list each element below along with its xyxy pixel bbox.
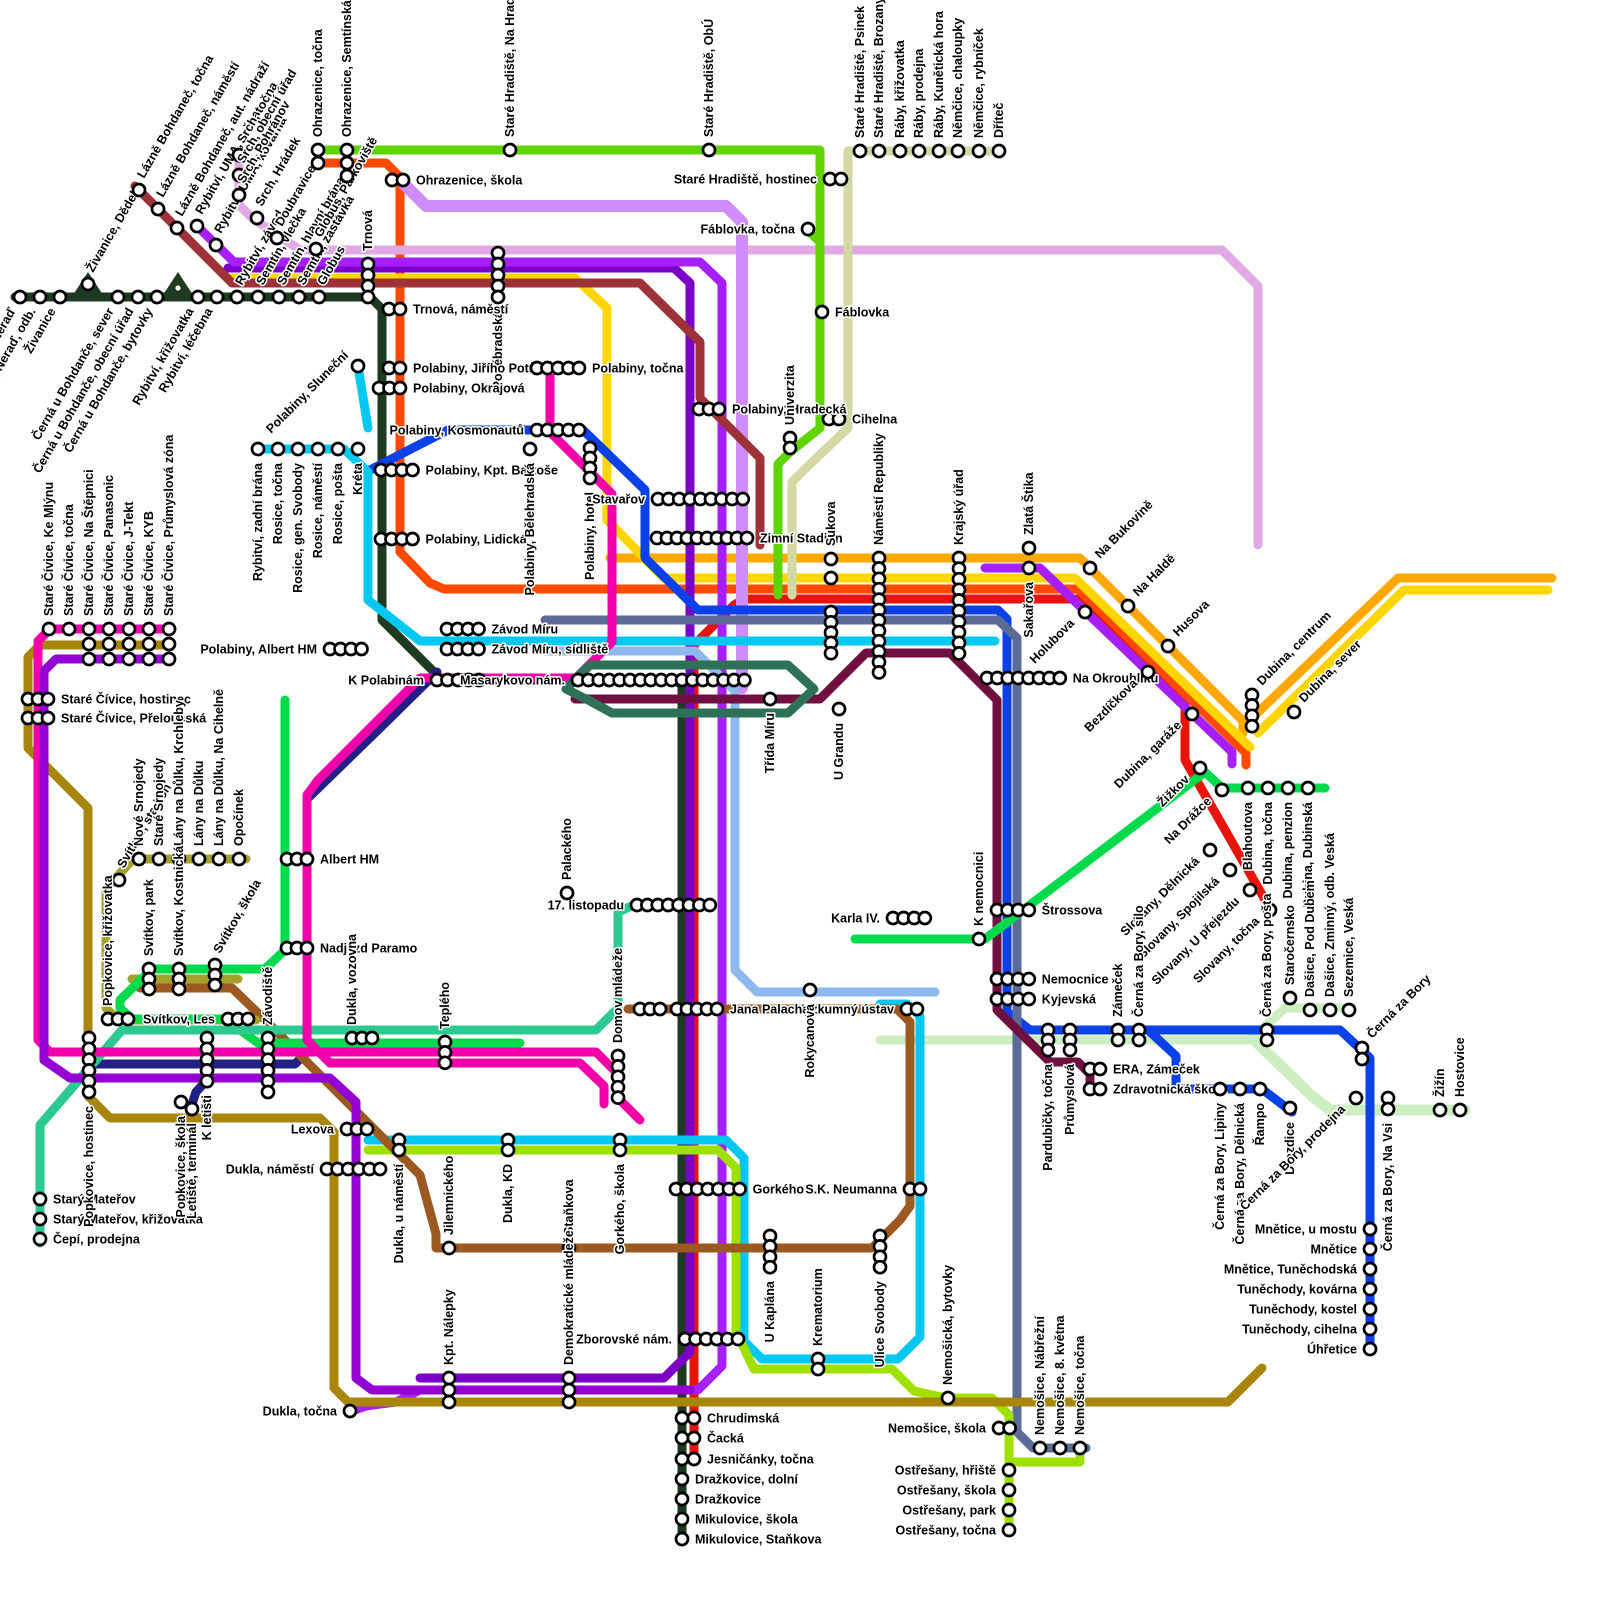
station-Kréta[interactable]: [352, 443, 364, 455]
station-label: Žižín: [1432, 1069, 1447, 1097]
station-Ráby, křižovatka[interactable]: [894, 145, 906, 157]
station-label: Kréta: [351, 462, 365, 495]
station-label: Svítkov, Kostnická: [172, 846, 186, 956]
station-label: Staré Hradiště, Na Hradci: [503, 0, 517, 137]
station-Černá u Bohdanče, bytovky[interactable]: [151, 291, 163, 303]
station-Trnová[interactable]: [362, 291, 374, 303]
station-label: Lány na Důlku, Krchleby: [172, 700, 186, 846]
station-Sakařova[interactable]: [1023, 562, 1035, 574]
station-Ráby, Kunětická hora[interactable]: [933, 145, 945, 157]
station-Polabiny, Bělehradská[interactable]: [524, 443, 536, 455]
station-label: Dražkovice, dolní: [695, 1473, 798, 1487]
station-Rybitví, UMA, točna[interactable]: [191, 220, 203, 232]
station-label: Náměstí Republiky: [872, 433, 886, 545]
station-Živanice, Dědek[interactable]: [82, 278, 94, 290]
station-Holubova[interactable]: [1079, 606, 1091, 618]
station-label: Na Bukovině: [1092, 498, 1155, 561]
station-Čacká[interactable]: [676, 1432, 688, 1444]
station-Polabiny, točna[interactable]: [573, 362, 585, 374]
station-label: Demokratické mládeže: [562, 1230, 576, 1365]
station-Staré Srnojedy[interactable]: [153, 853, 165, 865]
station-label: Ráby, Kunětická hora: [932, 10, 946, 138]
station-Globus, Parkoviště[interactable]: [310, 243, 322, 255]
station-label: Teplého: [438, 982, 452, 1029]
station-Ohrazenice, Semtínská[interactable]: [341, 157, 353, 169]
station-Černá u Bohdanče, obecní úřad[interactable]: [132, 291, 144, 303]
station-label: Staré Hradiště, hostinec: [674, 173, 817, 187]
station-label: U Grandu: [832, 723, 846, 780]
station-label: Polabiny, Bělehradská: [523, 463, 537, 596]
station-Tuněchody, kovárna[interactable]: [1364, 1283, 1376, 1295]
station-Jesničánky, točna[interactable]: [688, 1453, 700, 1465]
station-label: Mnětice, Tuněchodská: [1224, 1263, 1357, 1277]
station-Dubina, Dubinská[interactable]: [1302, 782, 1314, 794]
station-Staré Čívice, Na Štěpnici[interactable]: [83, 653, 95, 665]
station-Albert HM[interactable]: [301, 853, 313, 865]
station-label: Cihelna: [852, 413, 898, 427]
station-Drozdice[interactable]: [1284, 1102, 1296, 1114]
station-Svítkov, škola[interactable]: [209, 979, 221, 991]
station-Žižkov[interactable]: [1194, 762, 1206, 774]
station-Staré Čívice, Panasonic[interactable]: [103, 623, 115, 635]
station-Staré Čívice, Přeloučská[interactable]: [42, 712, 54, 724]
station-Polabiny, Kpt. Bartoše[interactable]: [407, 464, 419, 476]
station-Zimní Stadion[interactable]: [741, 532, 753, 544]
station-U Kaplána[interactable]: [764, 1261, 776, 1273]
station-K nemocnici[interactable]: [973, 933, 985, 945]
station-17. listopadu[interactable]: [704, 899, 716, 911]
station-Lány na Důlku[interactable]: [193, 853, 205, 865]
station-Zlatá Štika[interactable]: [1023, 542, 1035, 554]
station-Starý Mateřov[interactable]: [34, 1193, 46, 1205]
station-Ohrazenice, Semtínská[interactable]: [341, 144, 353, 156]
station-Třída Míru[interactable]: [764, 693, 776, 705]
station-label: Lány na Důlku: [192, 761, 206, 846]
station-Sukova[interactable]: [825, 572, 837, 584]
station-Dašice, Zminný, odb. Veská[interactable]: [1324, 1004, 1336, 1016]
station-label: Průmyslová: [1063, 1064, 1077, 1135]
station-Pardubičky, točna[interactable]: [1042, 1044, 1054, 1056]
station-Polabiny, Okrajová[interactable]: [394, 382, 406, 394]
station-label: Dašice, Zminný, odb. Veská: [1323, 833, 1337, 997]
station-label: Palackého: [560, 818, 574, 880]
station-Svítkov, Les[interactable]: [242, 1013, 254, 1025]
station-Staré Hradiště, Brozany[interactable]: [873, 145, 885, 157]
station-Lány na Důlku, Na Cihelně[interactable]: [213, 853, 225, 865]
station-Ohrazenice, točna[interactable]: [312, 144, 324, 156]
station-Žižín[interactable]: [1434, 1104, 1446, 1116]
station-Dašice, Pod Dubem[interactable]: [1304, 1004, 1316, 1016]
station-Ostřešany, park[interactable]: [1003, 1504, 1015, 1516]
station-Staré Čívice, Průmyslová zóna[interactable]: [163, 623, 175, 635]
station-Nemošice, Nábřežní[interactable]: [1034, 1442, 1046, 1454]
station-Nadjezd Paramo[interactable]: [301, 942, 313, 954]
station-Polabiny, Lidická[interactable]: [407, 533, 419, 545]
station-Zámeček[interactable]: [1112, 1034, 1124, 1046]
station-Dukla, točna[interactable]: [344, 1405, 356, 1417]
station-Slovany, U přejezdu[interactable]: [1244, 884, 1256, 896]
station-Mnětice[interactable]: [1364, 1243, 1376, 1255]
station-Polabiny, Sluneční[interactable]: [352, 360, 364, 372]
station-label: Staré Čívice, Ke Mlýnu: [41, 482, 56, 616]
station-Staré Čívice, Ke Mlýnu[interactable]: [43, 623, 55, 635]
station-Jana Palacha[interactable]: [711, 1003, 723, 1015]
station-Dukla, KD[interactable]: [502, 1144, 514, 1156]
station-Dukla, vozovna[interactable]: [366, 1032, 378, 1044]
station-label: Černá za Bory, Dělnická: [1232, 1103, 1247, 1245]
station-Černá za Bory, Na Vsi[interactable]: [1382, 1103, 1394, 1115]
station-Štrossova[interactable]: [1023, 904, 1035, 916]
station-Kpt. Nálepky[interactable]: [443, 1372, 455, 1384]
station-Nemocnice[interactable]: [1023, 973, 1035, 985]
station-Mnětice, Tuněchodská[interactable]: [1364, 1263, 1376, 1275]
station-Demokratické mládeže[interactable]: [563, 1384, 575, 1396]
station-Ostřešany, hřiště[interactable]: [1003, 1464, 1015, 1476]
station-label: Polabiny, Lidická: [426, 533, 527, 547]
station-Chrudimská[interactable]: [688, 1412, 700, 1424]
station-Staré Hradiště, hostinec[interactable]: [835, 173, 847, 185]
station-label: Dubina, penzion: [1281, 802, 1295, 899]
station-Trnová, náměstí[interactable]: [394, 303, 406, 315]
station-label: Závodiště: [261, 967, 275, 1025]
station-label: Sezemice, Veská: [1342, 898, 1356, 997]
station-Polabiny, Albert HM[interactable]: [356, 643, 368, 655]
station-label: Dukla, vozovna: [345, 933, 359, 1025]
station-Staré Čívice, Průmyslová zóna[interactable]: [163, 638, 175, 650]
station-label: Na Haldě: [1130, 551, 1178, 599]
station-Srch, Pohránov[interactable]: [233, 189, 245, 201]
station-Semtín, hlavní brána[interactable]: [273, 291, 285, 303]
station-Popkovice, škola[interactable]: [175, 1096, 187, 1108]
station-Mikulovice, Staňkova[interactable]: [676, 1533, 688, 1545]
station-Letiště, terminál[interactable]: [186, 1103, 198, 1115]
station-Staré Čívice, J-Tekt[interactable]: [123, 638, 135, 650]
station-Stavařov[interactable]: [737, 493, 749, 505]
station-Slovany, Dělnická[interactable]: [1204, 844, 1216, 856]
station-Staré Čívice, Panasonic[interactable]: [103, 638, 115, 650]
station-Čacká[interactable]: [688, 1432, 700, 1444]
station-Rybitví, UMA, kovárna[interactable]: [210, 239, 222, 251]
station-label: Chrudimská: [707, 1412, 779, 1426]
station-label: Staré Čívice, J-Tekt: [121, 501, 136, 616]
station-label: Kyjevská: [1042, 993, 1096, 1007]
station-Černá u Bohdanče, sever[interactable]: [112, 291, 124, 303]
station-Polabiny, Hradecká[interactable]: [713, 403, 725, 415]
station-label: Mikulovice, Staňkova: [695, 1533, 822, 1547]
station-label: Němčice, chaloupky: [951, 18, 965, 138]
station-label: Řampo: [1252, 1103, 1267, 1146]
station-Rosice, pošta[interactable]: [332, 443, 344, 455]
station-Černá za Bory, silo[interactable]: [1133, 1034, 1145, 1046]
station-label: 17. listopadu: [548, 899, 624, 913]
station-Černá za Bory, prodejna[interactable]: [1350, 1092, 1362, 1104]
station-label: S.K. Neumanna: [805, 1183, 898, 1197]
station-Staré Čívice, KYB[interactable]: [143, 623, 155, 635]
station-Němčice, rybníček[interactable]: [973, 145, 985, 157]
station-Dražkovice, dolní[interactable]: [676, 1473, 688, 1485]
station-Palackého[interactable]: [561, 887, 573, 899]
station-Nemošice, točna[interactable]: [1074, 1442, 1086, 1454]
station-Černá za Bory, Dělnická[interactable]: [1234, 1083, 1246, 1095]
station-Ohrazenice, Semtínská[interactable]: [341, 170, 353, 182]
station-Demokratické mládeže[interactable]: [563, 1396, 575, 1408]
station-Nemošice, 8. května[interactable]: [1054, 1442, 1066, 1454]
station-Náměstí Republiky[interactable]: [873, 666, 885, 678]
transit-map-canvas: Živanice, NeraďŽivanice, Neraď, odb.Živa…: [0, 0, 1600, 1600]
station-label: Němčice, rybníček: [972, 28, 986, 138]
station-Ostřešany, škola[interactable]: [1003, 1484, 1015, 1496]
station-Úhřetice[interactable]: [1364, 1343, 1376, 1355]
station-Univerzita[interactable]: [784, 442, 796, 454]
station-label: Staré Čívice, točna: [61, 503, 76, 616]
station-Dubina, sever[interactable]: [1288, 706, 1300, 718]
station-label: Zámeček: [1111, 963, 1125, 1017]
station-Srch, Hrádek[interactable]: [251, 212, 263, 224]
station-Ulice Svobody[interactable]: [874, 1261, 886, 1273]
station-label: Dubina, točna: [1261, 801, 1275, 885]
station-Chrudimská[interactable]: [676, 1412, 688, 1424]
station-Teplého[interactable]: [439, 1057, 451, 1069]
station-Poděbradská[interactable]: [492, 291, 504, 303]
station-Gorkého, škola[interactable]: [614, 1144, 626, 1156]
station-label: Rokycanova: [803, 1003, 817, 1078]
station-Dukla, náměstí[interactable]: [374, 1163, 386, 1175]
station-Staré Hradiště, ObÚ[interactable]: [703, 144, 715, 156]
station-label: Polabiny, točna: [592, 362, 684, 376]
station-Staročernsko[interactable]: [1284, 992, 1296, 1004]
station-Popkovice, hostinec[interactable]: [83, 1086, 95, 1098]
station-Staré Čívice, J-Tekt[interactable]: [123, 623, 135, 635]
station-Polabiny, hotel[interactable]: [584, 472, 596, 484]
line-slunecni-spur: [358, 366, 368, 428]
station-Staré Čívice, hostinec[interactable]: [42, 693, 54, 705]
station-label: Černá za Bory: [1364, 971, 1434, 1041]
station-Lázně Bohdaneč, točna[interactable]: [133, 184, 145, 196]
station-label: Čepí, prodejna: [53, 1232, 141, 1247]
station-Zborovské nám.[interactable]: [732, 1333, 744, 1345]
station-label: Černá za Bory, Na Vsi: [1380, 1123, 1395, 1251]
station-Krematorium[interactable]: [812, 1363, 824, 1375]
station-Jilemnického[interactable]: [443, 1242, 455, 1254]
station-Mnětice, u mostu[interactable]: [1364, 1223, 1376, 1235]
station-Na Haldě[interactable]: [1122, 600, 1134, 612]
station-Svítkov, Kostnická[interactable]: [173, 983, 185, 995]
station-Staré Čívice, Na Štěpnici[interactable]: [83, 638, 95, 650]
station-Staré Hradiště, Psinek[interactable]: [854, 145, 866, 157]
station-Dubina, penzion[interactable]: [1282, 782, 1294, 794]
station-Hostovice[interactable]: [1454, 1104, 1466, 1116]
station-Řampo[interactable]: [1254, 1083, 1266, 1095]
station-Starý Mateřov, křižovatka[interactable]: [34, 1213, 46, 1225]
station-label: Staré Čívice, Panasonic: [101, 475, 116, 616]
station-Dubina, točna[interactable]: [1262, 782, 1274, 794]
station-label: Nemošice, škola: [888, 1422, 987, 1436]
station-label: Trnová, náměstí: [413, 303, 509, 317]
station-label: K Polabinám: [348, 674, 424, 688]
station-Staré Hradiště, Na Hradci[interactable]: [504, 144, 516, 156]
station-Rosice, točna[interactable]: [272, 443, 284, 455]
station-label: Jana Palacha: [730, 1003, 810, 1017]
station-Semtín, zastávka[interactable]: [293, 291, 305, 303]
station-label: K letišti: [200, 1095, 214, 1140]
station-Rosice, náměstí[interactable]: [312, 443, 324, 455]
station-Bezdíčkova[interactable]: [1142, 666, 1154, 678]
station-Kpt. Nálepky[interactable]: [443, 1396, 455, 1408]
station-Dubina, centrum[interactable]: [1246, 720, 1258, 732]
station-Závodiště[interactable]: [262, 1086, 274, 1098]
station-Jesničánky, točna[interactable]: [676, 1453, 688, 1465]
station-label: Lány na Důlku, Na Cihelně: [212, 689, 226, 846]
station-Mikulovice, škola[interactable]: [676, 1513, 688, 1525]
station-label: Ulice Svobody: [873, 1281, 887, 1367]
station-Čepí, prodejna[interactable]: [34, 1233, 46, 1245]
station-label: Rosice, gen. Svobody: [291, 463, 305, 593]
station-Staré Čívice, točna[interactable]: [63, 623, 75, 635]
station[interactable]: [654, 1003, 666, 1015]
station-Kpt. Nálepky[interactable]: [443, 1384, 455, 1396]
station-label: U Kaplána: [763, 1280, 777, 1342]
station-Závod Míru[interactable]: [473, 623, 485, 635]
station-Svítkov, park[interactable]: [143, 983, 155, 995]
station-Slovany, Spojilská[interactable]: [1224, 864, 1236, 876]
station-Tuněchody, kostel[interactable]: [1364, 1303, 1376, 1315]
station-K letišti[interactable]: [201, 1075, 213, 1087]
station-Ohrazenice, točna[interactable]: [312, 157, 324, 169]
station-Živanice[interactable]: [54, 291, 66, 303]
station-label: Rosice, točna: [271, 462, 285, 544]
station-Blahoutova[interactable]: [1242, 782, 1254, 794]
station-Na Bukovině[interactable]: [1084, 562, 1096, 574]
station-label: Mnětice, u mostu: [1255, 1223, 1357, 1237]
station-label: Ohrazenice, škola: [416, 174, 523, 188]
station-Staré Čívice, Panasonic[interactable]: [103, 653, 115, 665]
station-Staré Čívice, Na Štěpnici[interactable]: [83, 623, 95, 635]
station-Sukova[interactable]: [825, 553, 837, 565]
station-label: Ostřešany, škola: [897, 1484, 997, 1498]
station-Semtín, vlečka[interactable]: [252, 291, 264, 303]
station-Domov mládeže[interactable]: [612, 1092, 624, 1104]
station-Krajský úřad[interactable]: [953, 647, 965, 659]
station-Opočínek[interactable]: [233, 853, 245, 865]
station-label: Gorkého, škola: [613, 1163, 627, 1254]
station-label: Krematorium: [811, 1268, 825, 1346]
station-label: Lexova: [291, 1123, 335, 1137]
station-label: Letiště, terminál: [185, 1123, 199, 1219]
station-Lázně Bohdaneč, aut. nádraží[interactable]: [171, 222, 183, 234]
station-S.K. Neumanna[interactable]: [914, 1183, 926, 1195]
station-Průmyslová[interactable]: [1064, 1044, 1076, 1056]
station-Lexova[interactable]: [361, 1123, 373, 1135]
station-Živanice, Neraď, odb.[interactable]: [34, 291, 46, 303]
station-Rybitví, léčebna[interactable]: [211, 291, 223, 303]
station-Sezemice, Veská[interactable]: [1343, 1004, 1355, 1016]
station-label: Ostřešany, hřiště: [895, 1464, 996, 1478]
station-Popkovice, křižovatka[interactable]: [122, 1013, 134, 1025]
station-Staré Čívice, KYB[interactable]: [143, 653, 155, 665]
station-label: Dražkovice: [695, 1493, 761, 1507]
station-Na Drážce[interactable]: [1216, 784, 1228, 796]
station-Dukla, u náměstí[interactable]: [393, 1144, 405, 1156]
station-Dubina, garáže[interactable]: [1186, 708, 1198, 720]
station-label: Rybitví, zadní brána: [251, 462, 265, 581]
station-Výzkumný ústav[interactable]: [911, 1003, 923, 1015]
station-Staré Čívice, Průmyslová zóna[interactable]: [163, 653, 175, 665]
station-Masarykovo nám.[interactable]: [738, 674, 750, 686]
station-Fáblovka, točna[interactable]: [802, 223, 814, 235]
station-Rosice, gen. Svobody[interactable]: [292, 443, 304, 455]
station-Černá za Bory[interactable]: [1356, 1053, 1368, 1065]
station-label: Polabiny, Kosmonautů: [390, 424, 525, 438]
station-Tuněchody, cihelna[interactable]: [1364, 1323, 1376, 1335]
station-Nemošice, škola[interactable]: [1004, 1422, 1016, 1434]
station-Staré Čívice, J-Tekt[interactable]: [123, 653, 135, 665]
station-Na Okrouhlíku[interactable]: [1054, 672, 1066, 684]
station-Husova[interactable]: [1162, 640, 1174, 652]
station-Rokycanova[interactable]: [804, 984, 816, 996]
station[interactable]: [825, 647, 837, 659]
station-Rybitví, zadní brána[interactable]: [252, 443, 264, 455]
station-Staré Čívice, KYB[interactable]: [143, 638, 155, 650]
station-Černá za Bory, pošta[interactable]: [1261, 1034, 1273, 1046]
station-Černá za Bory, Lipiny[interactable]: [1214, 1083, 1226, 1095]
station-label: Dukla, u náměstí: [392, 1163, 406, 1263]
line-srch-plum: [239, 150, 1258, 545]
station-Demokratické mládeže[interactable]: [563, 1372, 575, 1384]
station-Rybitví, křižovatka[interactable]: [192, 291, 204, 303]
station-U Grandu[interactable]: [833, 703, 845, 715]
station-label: Popkovice, hostinec: [82, 1106, 96, 1227]
station-label: Jesničánky, točna: [707, 1453, 815, 1467]
station-Ohrazenice, škola[interactable]: [397, 174, 409, 186]
station-Ráby, prodejna[interactable]: [913, 145, 925, 157]
station-label: Svítkov, park: [142, 879, 156, 956]
station-Dříteč[interactable]: [993, 145, 1005, 157]
station-Lázně Bohdaneč, náměstí[interactable]: [152, 203, 164, 215]
station-Polabiny, Jiřího Potůčka[interactable]: [394, 362, 406, 374]
station-Doubravice[interactable]: [271, 232, 283, 244]
station-label: Živanice, Dědek: [83, 185, 143, 274]
station-Fáblovka[interactable]: [816, 306, 828, 318]
station-label: Staré Srnojedy: [152, 758, 166, 846]
station-Ostřešany, točna[interactable]: [1003, 1524, 1015, 1536]
station-label: Poděbradská: [491, 311, 505, 390]
station-label: Dukla, náměstí: [226, 1163, 315, 1177]
station-Nemošická, bytovky[interactable]: [942, 1392, 954, 1404]
station-label: Univerzita: [783, 364, 797, 425]
station-Závod Míru, sídliště[interactable]: [473, 643, 485, 655]
station-Dražkovice[interactable]: [676, 1493, 688, 1505]
station-label: Svítkov, škola: [210, 876, 264, 955]
station-Němčice, chaloupky[interactable]: [952, 145, 964, 157]
station-label: Kpt. Nálepky: [442, 1289, 456, 1365]
station-Karla IV.[interactable]: [919, 912, 931, 924]
line-yellow-ne: [1258, 590, 1548, 733]
station-Polabiny, Kosmonautů[interactable]: [573, 424, 585, 436]
station-Globus[interactable]: [313, 291, 325, 303]
station-Gorkého[interactable]: [734, 1183, 746, 1195]
junction-triangle: [161, 272, 195, 298]
line-brightviolet: [197, 226, 722, 1411]
station-Živanice, Neraď[interactable]: [14, 291, 26, 303]
station-label: Tuněchody, kostel: [1249, 1303, 1357, 1317]
station-Zdravotnická škola[interactable]: [1094, 1083, 1106, 1095]
station-Rybitví, závod[interactable]: [231, 291, 243, 303]
station-ERA, Zámeček[interactable]: [1094, 1063, 1106, 1075]
station-Nové Srnojedy[interactable]: [133, 853, 145, 865]
station-label: Staňkova: [562, 1178, 576, 1235]
station-Kyjevská[interactable]: [1023, 993, 1035, 1005]
station-label: Staré Čívice, KYB: [141, 511, 156, 616]
